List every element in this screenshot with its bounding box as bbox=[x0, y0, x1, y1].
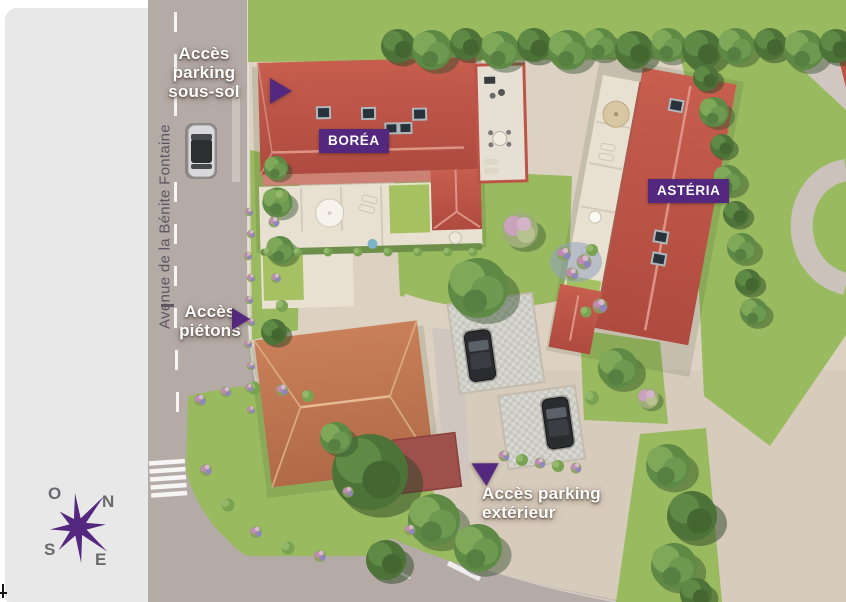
compass-star-icon bbox=[23, 472, 133, 582]
compass-west-label: O bbox=[48, 484, 61, 504]
compass-north-label: N bbox=[102, 492, 114, 512]
print-crop-mark bbox=[2, 584, 4, 598]
print-crop-mark bbox=[0, 592, 7, 594]
car-on-road bbox=[185, 123, 217, 179]
aerial-site-plan: Avenue de la Bénite Fontaine Accès parki… bbox=[148, 0, 846, 602]
access-underground-parking-arrow-icon bbox=[270, 78, 292, 104]
compass-rose: O N S E bbox=[20, 470, 140, 590]
site-plan-page: O N S E bbox=[0, 0, 846, 602]
borea-roof-terrace bbox=[476, 64, 527, 182]
access-outdoor-parking-label: Accès parking extérieur bbox=[482, 484, 662, 522]
compass-east-label: E bbox=[95, 550, 106, 570]
building-label-borea: BORÉA bbox=[319, 129, 389, 153]
left-margin-panel: O N S E bbox=[5, 8, 148, 602]
access-pedestrian-arrow-icon bbox=[232, 308, 250, 330]
compass-south-label: S bbox=[44, 540, 55, 560]
building-label-asteria: ASTÉRIA bbox=[648, 179, 729, 203]
parking-area-2 bbox=[498, 385, 585, 469]
access-underground-parking-label: Accès parking sous-sol bbox=[152, 44, 256, 102]
